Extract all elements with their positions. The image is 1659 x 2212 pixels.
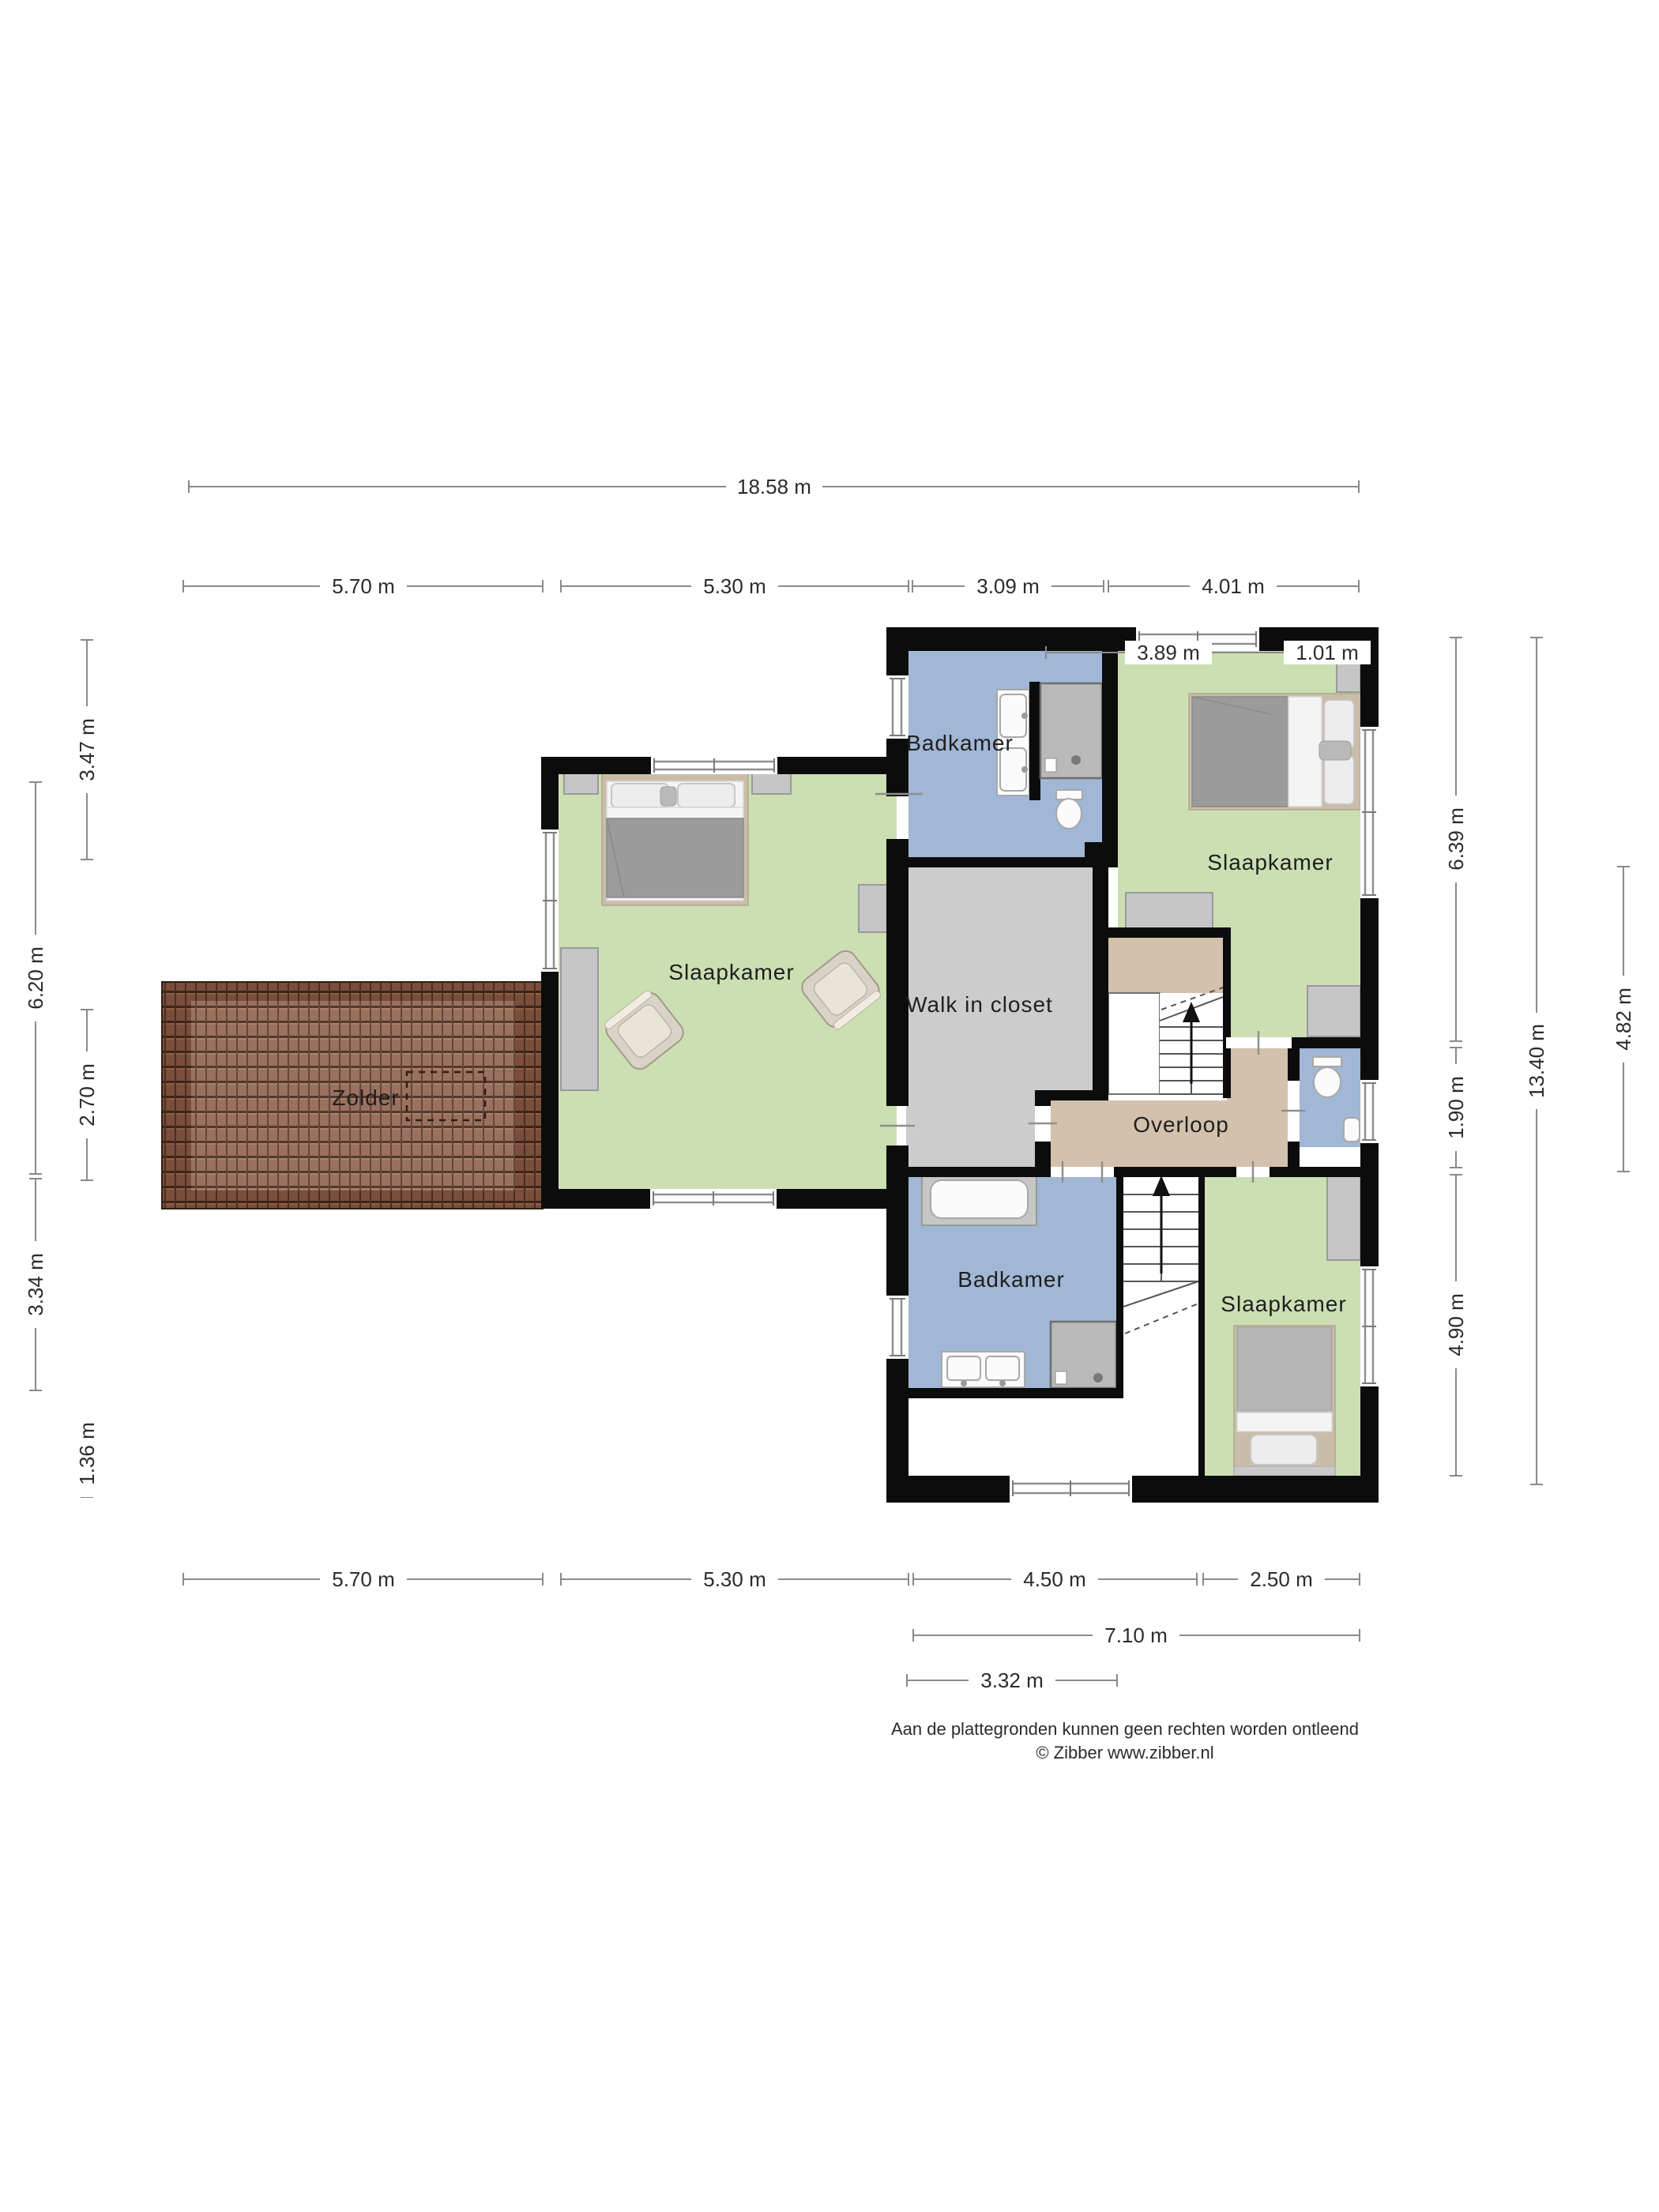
dim-text: 13.40 m	[1525, 1024, 1548, 1098]
double-bed-left	[602, 770, 748, 905]
dim-text: 2.50 m	[1250, 1567, 1313, 1591]
dim-text: 4.90 m	[1444, 1293, 1468, 1356]
toilet	[1056, 799, 1082, 829]
dim-text: 3.34 m	[24, 1253, 47, 1316]
dim-bottom-sub: 7.10 m 3.32 m	[907, 1623, 1360, 1692]
footer-disclaimer: Aan de plattegronden kunnen geen rechten…	[891, 1719, 1359, 1739]
dim-text: 5.30 m	[703, 1567, 766, 1591]
desk	[1126, 893, 1213, 928]
label-overloop: Overloop	[1133, 1112, 1229, 1137]
label-badkamer-top: Badkamer	[906, 731, 1014, 755]
stair-landing-floor	[1108, 938, 1223, 993]
label-badkamer-bottom: Badkamer	[957, 1267, 1065, 1292]
bathtub	[931, 1180, 1028, 1218]
toilet	[1314, 1067, 1341, 1097]
window-left-slaapkamer-north	[651, 757, 777, 774]
window-bottom-south	[1010, 1476, 1132, 1503]
floorplan-page: Badkamer Slaapkamer Slaapkamer Zolder Wa…	[0, 0, 1659, 2212]
dim-right-far: 4.82 m	[1612, 867, 1635, 1172]
dim-text: 3.89 m	[1137, 641, 1200, 664]
dim-text: 2.70 m	[75, 1063, 99, 1127]
window-slaapkamer-bottom-east	[1360, 1266, 1379, 1386]
wardrobe	[1327, 1175, 1360, 1260]
dim-text: 18.58 m	[737, 475, 811, 498]
dim-top-row: 5.70 m 5.30 m 3.09 m 4.01 m	[183, 574, 1359, 598]
window-left-slaapkamer-west	[541, 829, 559, 972]
dim-right-inner: 6.39 m 1.90 m 4.90 m	[1444, 638, 1468, 1476]
dim-text: 6.20 m	[24, 946, 47, 1010]
dresser	[561, 948, 598, 1090]
window-wc-east	[1360, 1080, 1379, 1143]
window-slaapkamer-top-east	[1360, 727, 1379, 898]
nightstand	[1307, 986, 1360, 1036]
dim-text: 3.47 m	[75, 718, 99, 781]
dim-text: 1.90 m	[1444, 1076, 1468, 1139]
dim-text: 4.01 m	[1202, 574, 1265, 598]
footer: Aan de plattegronden kunnen geen rechten…	[891, 1719, 1359, 1762]
label-slaapkamer-left: Slaapkamer	[668, 960, 794, 984]
partition-wall	[1029, 682, 1040, 800]
dim-text: 1.01 m	[1296, 641, 1359, 664]
dim-text: 6.39 m	[1444, 807, 1468, 871]
window-badkamer-bottom-west	[886, 1296, 908, 1359]
stairs-lower	[1123, 1176, 1198, 1476]
single-bed-bottom	[1234, 1326, 1335, 1476]
footer-copyright: © Zibber www.zibber.nl	[1036, 1743, 1213, 1762]
label-zolder: Zolder	[332, 1085, 399, 1110]
stair-closet	[1108, 993, 1160, 1094]
dim-left-outer: 6.20 m 3.34 m	[24, 782, 47, 1390]
label-slaapkamer-top: Slaapkamer	[1207, 850, 1333, 875]
nightstand	[752, 772, 791, 794]
door-overloop-badkamerbottom	[1051, 1167, 1114, 1177]
dim-bottom-row: 5.70 m 5.30 m 4.50 m 2.50 m	[183, 1567, 1360, 1591]
dim-text: 4.82 m	[1612, 987, 1635, 1051]
dim-text: 1.36 m	[75, 1422, 99, 1485]
dim-right-outer: 13.40 m	[1525, 638, 1548, 1484]
dim-text: 3.09 m	[976, 574, 1040, 598]
window-left-slaapkamer-south	[650, 1189, 777, 1209]
dim-text: 5.70 m	[332, 1567, 395, 1591]
dim-left-inner: 3.47 m 2.70 m 1.36 m	[75, 640, 99, 1497]
dim-text: 4.50 m	[1023, 1567, 1086, 1591]
dim-text: 3.32 m	[980, 1668, 1044, 1692]
dim-top-total: 18.58 m	[189, 475, 1359, 498]
dim-text: 5.70 m	[332, 574, 395, 598]
label-walk-in-closet: Walk in closet	[906, 992, 1053, 1017]
wc-sink	[1344, 1118, 1360, 1142]
double-bed-top	[1189, 694, 1360, 810]
toilet-tank	[1313, 1057, 1341, 1066]
dim-text: 5.30 m	[703, 574, 766, 598]
stairs-upper	[1108, 987, 1223, 1094]
dim-text: 7.10 m	[1104, 1623, 1168, 1647]
label-slaapkamer-bottom: Slaapkamer	[1221, 1292, 1346, 1316]
floorplan-svg: Badkamer Slaapkamer Slaapkamer Zolder Wa…	[0, 0, 1659, 2212]
nightstand	[564, 772, 598, 794]
window-badkamer-top-west	[886, 675, 908, 739]
